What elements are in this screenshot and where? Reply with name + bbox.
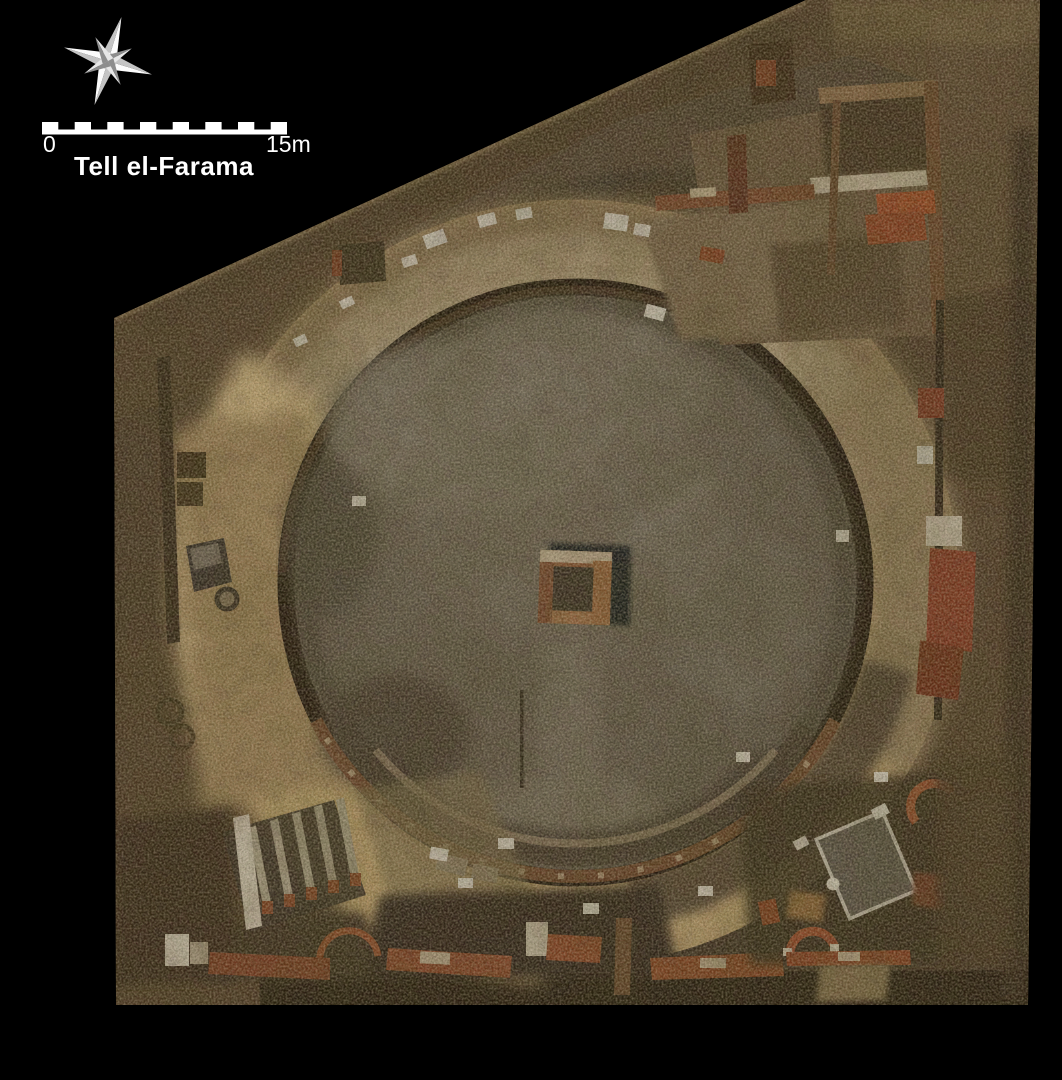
svg-text:0: 0 — [43, 131, 56, 157]
svg-text:15m: 15m — [266, 131, 311, 157]
svg-text:Tell el-Farama: Tell el-Farama — [74, 151, 254, 181]
